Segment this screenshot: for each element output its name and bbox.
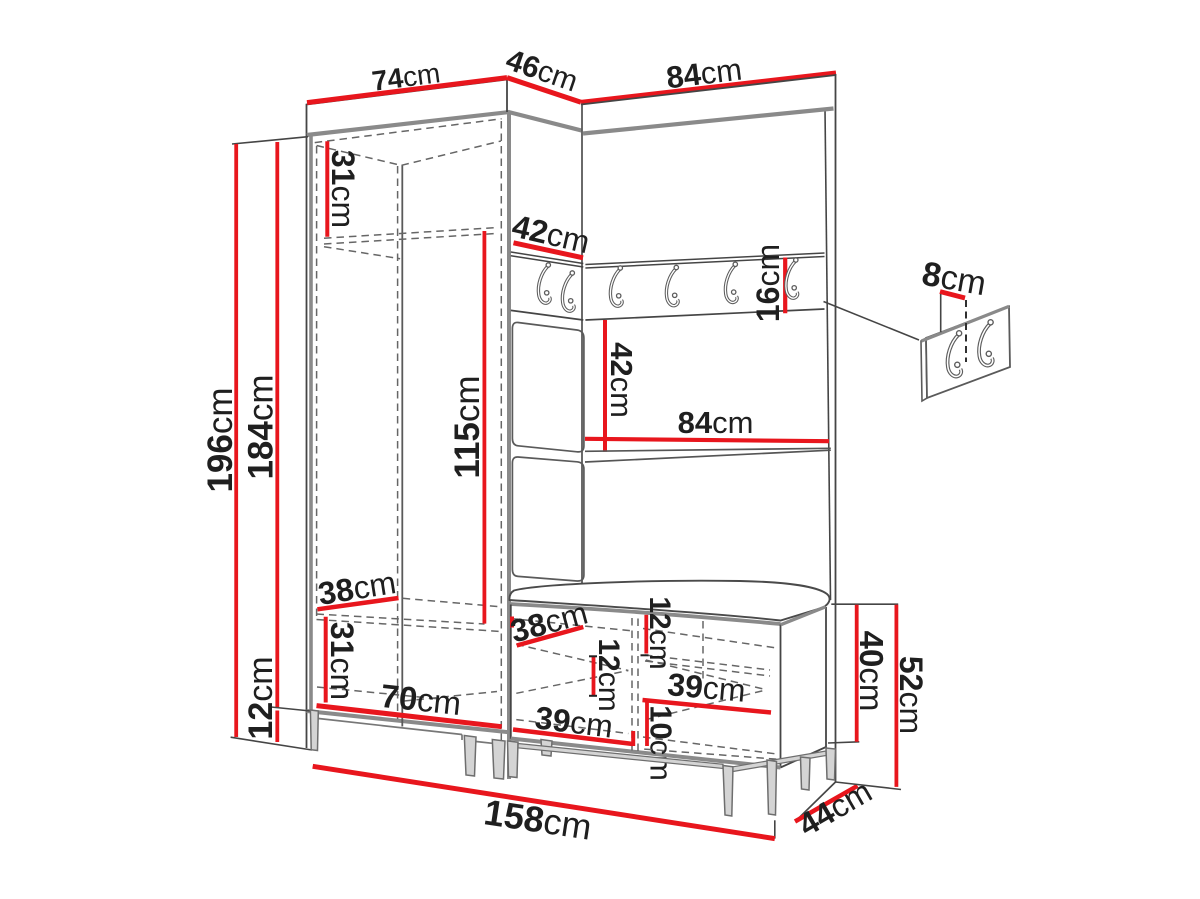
svg-text:12cm: 12cm	[644, 596, 677, 669]
svg-text:12cm: 12cm	[242, 656, 280, 739]
svg-text:40cm: 40cm	[854, 631, 891, 712]
svg-text:39cm: 39cm	[666, 666, 747, 709]
svg-text:115cm: 115cm	[448, 375, 487, 478]
svg-text:196cm: 196cm	[201, 387, 240, 492]
svg-text:31cm: 31cm	[324, 622, 360, 700]
svg-text:31cm: 31cm	[325, 150, 361, 228]
svg-text:84cm: 84cm	[678, 405, 754, 440]
svg-text:16cm: 16cm	[750, 244, 786, 322]
svg-text:10cm: 10cm	[644, 705, 679, 781]
svg-text:52cm: 52cm	[893, 656, 929, 734]
svg-text:42cm: 42cm	[605, 342, 640, 418]
svg-text:184cm: 184cm	[241, 374, 280, 479]
svg-text:12cm: 12cm	[593, 638, 626, 711]
